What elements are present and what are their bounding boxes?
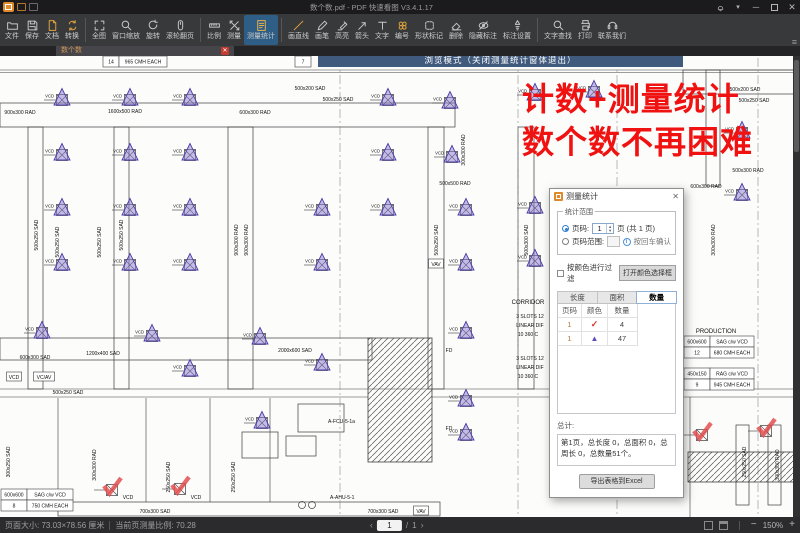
header-cell: 颜色 [582, 304, 608, 317]
contact-icon [606, 19, 619, 32]
svg-text:VCD: VCD [113, 94, 122, 99]
svg-text:300x300 RAD: 300x300 RAD [92, 449, 98, 481]
row-page: 1 [558, 318, 582, 331]
duct-label: 3 SLOTS 12 [516, 356, 544, 362]
duct-label: 250x250 SAD [742, 446, 748, 477]
document-tabbar: 数个数 ✕ [0, 46, 800, 56]
zoom-controls: − 150% + [704, 520, 795, 530]
duct-label: 300x300 RAD [775, 449, 781, 481]
toolbar-label: 联系我们 [598, 33, 626, 41]
svg-text:VAV: VAV [431, 262, 441, 268]
svg-text:VCD: VCD [725, 189, 734, 194]
svg-text:VCD: VCD [305, 259, 314, 264]
red-check-marker-icon: ✓ [591, 319, 599, 330]
duct-label: 300x300 RAD [461, 134, 467, 166]
svg-text:VCD: VCD [371, 94, 380, 99]
duct-label: 500x250 SAD [53, 390, 84, 396]
notification-bell-icon[interactable] [715, 2, 725, 12]
svg-text:1600x500 RAD: 1600x500 RAD [108, 109, 142, 115]
statusbar: 页面大小: 73.03×78.56 厘米 当前页测量比例: 70.28 ‹ 1 … [0, 517, 800, 533]
svg-text:900x300 RAD: 900x300 RAD [244, 224, 250, 256]
toolbar-label: 隐藏标注 [469, 33, 497, 41]
svg-text:SAG c/w VCD: SAG c/w VCD [34, 493, 66, 499]
stats-icon [255, 19, 268, 32]
duct-label: 600x300 RAD [690, 184, 722, 190]
toolbar-text-button[interactable]: 文字 [372, 15, 392, 45]
toolbar-label: 打印 [578, 33, 592, 41]
blueprint-table: 14965 CMH EACH [103, 56, 167, 67]
toolbar-label: 文字 [375, 33, 389, 41]
quick-save-icon[interactable] [29, 3, 38, 11]
blueprint-table: 600x600SAG c/w VCD8750 CMH EACH [1, 489, 73, 511]
svg-text:VCD: VCD [449, 259, 458, 264]
print-icon [579, 19, 592, 32]
doc-icon [46, 19, 59, 32]
search-icon [552, 19, 565, 32]
duct-label: 300x250 SAD [6, 446, 12, 477]
overlay-line1: 计数+测量统计 [522, 78, 753, 121]
overlay-line2: 数个数不再困难 [522, 121, 753, 164]
svg-text:600x300 RAD: 600x300 RAD [239, 110, 271, 116]
blueprint-table: 450x150RAG c/w VCD9945 CMH EACH [684, 368, 754, 390]
page-radio[interactable] [562, 225, 569, 232]
svg-text:VCD: VCD [435, 151, 444, 156]
toolbar-label: 旋转 [146, 33, 160, 41]
annoset-icon [511, 19, 524, 32]
color-filter-checkbox[interactable] [557, 270, 564, 277]
total-label: 总计: [557, 420, 676, 431]
stats-table-row[interactable]: 1✓4 [558, 318, 637, 332]
open-color-picker-button[interactable]: 打开颜色选择框 [619, 265, 676, 281]
toolbar-print-button[interactable]: 打印 [575, 15, 595, 45]
svg-text:VCD: VCD [449, 429, 458, 434]
blueprint-table: 7 [295, 56, 311, 67]
duct-label: VC/AV [34, 372, 55, 381]
toolbar-label: 形状标记 [415, 33, 443, 41]
svg-text:VCD: VCD [449, 327, 458, 332]
zoom-out-button[interactable]: − [751, 520, 757, 530]
svg-text:VC/AV: VC/AV [37, 375, 52, 381]
toolbar-scale-button[interactable]: 比例 [204, 15, 224, 45]
svg-text:VCD: VCD [191, 495, 202, 501]
duct-label: 600x300 RAD [239, 110, 271, 116]
duct-label: 1200x400 SAD [86, 351, 120, 357]
svg-text:945 CMH EACH: 945 CMH EACH [714, 383, 751, 389]
svg-text:600x300 SAD: 600x300 SAD [20, 355, 51, 361]
svg-text:700x300 SAD: 700x300 SAD [140, 509, 171, 515]
svg-text:10 360 C: 10 360 C [518, 374, 539, 380]
text-icon [376, 19, 389, 32]
svg-text:VCD: VCD [305, 359, 314, 364]
line-icon [292, 19, 305, 32]
duct-label: 300x300 RAD [92, 449, 98, 481]
svg-text:VCD: VCD [518, 255, 527, 260]
toolbar-divider [200, 18, 201, 42]
current-page-input[interactable]: 1 [377, 520, 402, 531]
vertical-scrollbar[interactable] [793, 56, 800, 517]
duct-label: VCD [191, 495, 202, 501]
convert-icon [66, 19, 79, 32]
svg-text:500x250 SAD: 500x250 SAD [53, 390, 84, 396]
svg-text:A-AHU-5-1: A-AHU-5-1 [330, 495, 355, 501]
app-logo-icon [3, 2, 14, 12]
svg-text:300x250 SAD: 300x250 SAD [6, 446, 12, 477]
toolbar-rotate-button[interactable]: 旋转 [143, 15, 163, 45]
close-button[interactable]: ✕ [787, 2, 797, 12]
toolbar-label: 删除 [449, 33, 463, 41]
toolbar-search-button[interactable]: 文字查找 [541, 15, 575, 45]
erase-icon [450, 19, 463, 32]
toolbar-label: 转换 [65, 33, 79, 41]
svg-text:VCD: VCD [173, 149, 182, 154]
fit-width-icon[interactable] [719, 521, 728, 530]
duct-label: 250x250 SAD [231, 461, 237, 492]
page-separator: / [406, 521, 408, 530]
svg-text:SAG c/w VCD: SAG c/w VCD [716, 340, 748, 346]
svg-text:500x200 SAD: 500x200 SAD [295, 86, 326, 92]
toolbar-erase-button[interactable]: 删除 [446, 15, 466, 45]
blueprint-table: 600x600SAG c/w VCD12680 CMH EACH [684, 336, 754, 358]
toolbar-label: 编号 [395, 33, 409, 41]
svg-text:VCD: VCD [45, 204, 54, 209]
svg-text:VCD: VCD [433, 97, 442, 102]
duct-label: 3 SLOTS 12 [516, 314, 544, 320]
toolbar-arrow-button[interactable]: 箭头 [352, 15, 372, 45]
toolbar-highlight-button[interactable]: 高亮 [332, 15, 352, 45]
svg-text:VCD: VCD [45, 94, 54, 99]
window-title: 数个数.pdf - PDF 快速看图 V3.4.1.17 [310, 2, 433, 13]
mouse-icon [174, 19, 187, 32]
row-page: 1 [558, 332, 582, 345]
duct-label: 700x300 SAD [368, 509, 399, 515]
fit-icon [93, 19, 106, 32]
toolbar-pen-button[interactable]: 画笔 [312, 15, 332, 45]
svg-text:VCD: VCD [245, 417, 254, 422]
stats-table-header: 页码颜色数量 [558, 304, 637, 318]
svg-text:CORRIDOR: CORRIDOR [512, 300, 545, 306]
duct-label: 500x300 SAD [524, 224, 530, 255]
scale-text: 当前页测量比例: 70.28 [115, 520, 195, 531]
duct-label: VAV [429, 259, 444, 268]
scrollbar-thumb[interactable] [794, 60, 799, 152]
svg-text:300x300 RAD: 300x300 RAD [461, 134, 467, 166]
folder-icon [6, 19, 19, 32]
hide-icon [477, 19, 490, 32]
header-cell: 数量 [608, 304, 636, 317]
svg-text:600x300 RAD: 600x300 RAD [690, 184, 722, 190]
next-page-icon[interactable]: › [421, 520, 424, 530]
duct-label: 10 360 C [518, 332, 539, 338]
svg-text:14: 14 [108, 60, 114, 66]
svg-text:LINEAR DIF: LINEAR DIF [516, 365, 544, 371]
svg-text:900x300 RAD: 900x300 RAD [234, 224, 240, 256]
svg-text:250x250 SAD: 250x250 SAD [166, 461, 172, 492]
toolbar-number-button[interactable]: 编号 [392, 15, 412, 45]
stats-tab-长度[interactable]: 长度 [557, 291, 598, 304]
svg-text:250x250 SAD: 250x250 SAD [231, 461, 237, 492]
color-filter-label: 按颜色进行过滤 [567, 262, 616, 284]
toolbar-hide-button[interactable]: 隐藏标注 [466, 15, 500, 45]
page-size-text: 页面大小: 73.03×78.56 厘米 [5, 520, 104, 531]
toolbar-label: 比例 [207, 33, 221, 41]
duct-label: 10 360 C [518, 374, 539, 380]
duct-label: CORRIDOR [512, 300, 545, 306]
maximize-button[interactable] [769, 2, 779, 12]
duct-label: 500x300 RAD [732, 168, 764, 174]
svg-text:VCD: VCD [173, 259, 182, 264]
duct-label: 500x250 SAD [34, 219, 40, 250]
duct-label: A-AHU-5-1 [330, 495, 355, 501]
stats-range-group: 统计范围 页码: 1 ▲▼ 页 (共 1 页) 页码范围: i 按回车确认 [557, 211, 676, 255]
toolbar-label: 高亮 [335, 33, 349, 41]
toolbar-stats-button[interactable]: 测量统计 [244, 15, 278, 45]
zoomwin-icon [120, 19, 133, 32]
duct-label: 500x250 SAD [434, 224, 440, 255]
number-icon [396, 19, 409, 32]
duct-label: 500x250 SAD [55, 226, 61, 257]
svg-text:500x250 SAD: 500x250 SAD [119, 219, 125, 250]
page-radio-label: 页码: [572, 223, 589, 234]
duct-label: 500x500 RAD [439, 181, 471, 187]
save-icon [26, 19, 39, 32]
minimize-button[interactable]: ─ [751, 2, 761, 12]
svg-text:VCD: VCD [9, 375, 20, 381]
svg-text:1200x400 SAD: 1200x400 SAD [86, 351, 120, 357]
svg-text:VCD: VCD [173, 204, 182, 209]
duct-label: 250x250 SAD [166, 461, 172, 492]
svg-text:VAV: VAV [416, 509, 426, 515]
toolbar-label: 窗口缩放 [112, 33, 140, 41]
info-icon: i [623, 238, 631, 246]
duct-label: 900x300 RAD [244, 224, 250, 256]
row-marker: ✓ [582, 318, 608, 331]
page-range-radio[interactable] [562, 238, 569, 245]
shape-icon [423, 19, 436, 32]
toolbar-divider [85, 18, 86, 42]
duct-label: 500x250 SAD [119, 219, 125, 250]
svg-text:VCD: VCD [45, 149, 54, 154]
svg-text:10 360 C: 10 360 C [518, 332, 539, 338]
duct-label: 500x200 SAD [295, 86, 326, 92]
svg-text:450x150: 450x150 [687, 372, 706, 378]
chevron-down-icon[interactable]: ▾ [733, 2, 743, 12]
svg-text:VCD: VCD [45, 259, 54, 264]
duct-label: 700x300 SAD [140, 509, 171, 515]
row-count: 47 [608, 332, 636, 345]
svg-text:500x250 SAD: 500x250 SAD [34, 219, 40, 250]
toolbar-label: 文字查找 [544, 33, 572, 41]
toolbar-label: 测量统计 [247, 33, 275, 41]
duct-label: 900x300 RAD [4, 110, 36, 116]
toolbar-label: 全图 [92, 33, 106, 41]
confirm-hint: 按回车确认 [634, 236, 672, 247]
total-pages: 1 [412, 521, 416, 530]
svg-text:7: 7 [302, 60, 305, 66]
svg-text:250x250 SAD: 250x250 SAD [742, 446, 748, 477]
svg-text:RAG c/w VCD: RAG c/w VCD [716, 372, 748, 378]
stats-tabs: 长度面积数量 [557, 291, 676, 304]
measurement-stats-panel: 测量统计 ✕ 统计范围 页码: 1 ▲▼ 页 (共 1 页) 页码范围: i 按… [549, 188, 684, 498]
measure-icon [228, 19, 241, 32]
prev-page-icon[interactable]: ‹ [370, 520, 373, 530]
tab-label: 数个数 [61, 46, 82, 56]
divider [739, 521, 740, 530]
svg-text:VCD: VCD [123, 495, 134, 501]
fit-page-icon[interactable] [704, 521, 713, 530]
svg-text:8: 8 [13, 504, 16, 510]
svg-text:300x300 RAD: 300x300 RAD [711, 224, 717, 256]
duct-label: FD [446, 348, 453, 354]
stats-tab-数量[interactable]: 数量 [636, 291, 677, 304]
duct-label: 500x250 SAD [323, 97, 354, 103]
toolbar-label: 画直线 [288, 33, 309, 41]
document-canvas[interactable]: 14965 CMH EACH7600x600SAG c/w VCD8750 CM… [0, 56, 800, 517]
svg-text:700x300 SAD: 700x300 SAD [368, 509, 399, 515]
toolbar-label: 保存 [25, 33, 39, 41]
stats-range-legend: 统计范围 [563, 207, 595, 217]
duct-label: 1600x500 RAD [108, 109, 142, 115]
svg-text:300x300 RAD: 300x300 RAD [775, 449, 781, 481]
duct-label: 600x300 SAD [20, 355, 51, 361]
svg-text:500x500 RAD: 500x500 RAD [439, 181, 471, 187]
document-tab[interactable]: 数个数 ✕ [56, 46, 234, 56]
toolbar-label: 箭头 [355, 33, 369, 41]
export-excel-button[interactable]: 导出表格到Excel [579, 474, 655, 489]
svg-text:750 CMH EACH: 750 CMH EACH [32, 504, 69, 510]
collapse-toolbar-icon[interactable]: ≡ [792, 38, 797, 46]
panel-close-icon[interactable]: ✕ [672, 192, 679, 201]
svg-text:600x600: 600x600 [687, 340, 706, 346]
toolbar-measure-button[interactable]: 测量 [224, 15, 244, 45]
quick-doc-icon[interactable] [17, 3, 26, 11]
toolbar-label: 滚轮翻页 [166, 33, 194, 41]
svg-text:VCD: VCD [25, 327, 34, 332]
svg-text:965 CMH EACH: 965 CMH EACH [125, 60, 162, 66]
panel-icon [554, 192, 563, 201]
svg-text:VCD: VCD [113, 204, 122, 209]
svg-text:VCD: VCD [371, 204, 380, 209]
duct-label: 500x250 SAD [97, 226, 103, 257]
stepper-arrows-icon[interactable]: ▲▼ [606, 224, 613, 233]
svg-text:500x250 SAD: 500x250 SAD [323, 97, 354, 103]
svg-text:500x300 SAD: 500x300 SAD [524, 224, 530, 255]
rotate-icon [147, 19, 160, 32]
page-navigation: ‹ 1 / 1 › [370, 520, 424, 531]
toolbar-label: 测量 [227, 33, 241, 41]
app-window: { "window": { "title": "数个数.pdf - PDF 快速… [0, 0, 800, 533]
svg-text:VCD: VCD [135, 330, 144, 335]
duct-label: A-FCU-5-1a [328, 419, 355, 425]
svg-text:2000x600 SAD: 2000x600 SAD [278, 348, 312, 354]
duct-label: LINEAR DIF [516, 365, 544, 371]
page-range-input[interactable] [607, 236, 619, 247]
svg-text:9: 9 [696, 383, 699, 389]
svg-text:500x300 RAD: 500x300 RAD [732, 168, 764, 174]
header-cell: 页码 [558, 304, 582, 317]
duct-label: 300x300 RAD [711, 224, 717, 256]
titlebar: 数个数.pdf - PDF 快速看图 V3.4.1.17 ▾ ─ ✕ [0, 0, 800, 14]
toolbar-mouse-button[interactable]: 滚轮翻页 [163, 15, 197, 45]
stats-table-row[interactable]: 1▲47 [558, 332, 637, 346]
stats-table: 页码颜色数量1✓41▲47 [557, 304, 676, 414]
toolbar-annoset-button[interactable]: 标注设置 [500, 15, 534, 45]
zoom-in-button[interactable]: + [789, 520, 795, 530]
svg-text:PRODUCTION: PRODUCTION [696, 329, 736, 335]
svg-text:VCD: VCD [113, 149, 122, 154]
toolbar-label: 画笔 [315, 33, 329, 41]
panel-title: 测量统计 [566, 191, 669, 202]
toolbar-label: 文档 [45, 33, 59, 41]
toolbar-doc-button[interactable]: 文档 [42, 15, 62, 45]
row-marker: ▲ [582, 332, 608, 345]
svg-text:3 SLOTS 12: 3 SLOTS 12 [516, 314, 544, 320]
svg-text:A-FCU-5-1a: A-FCU-5-1a [328, 419, 355, 425]
svg-text:500x250 SAD: 500x250 SAD [55, 226, 61, 257]
toolbar-convert-button[interactable]: 转换 [62, 15, 82, 45]
main-toolbar: 文件保存文档转换全图窗口缩放旋转滚轮翻页比例测量测量统计画直线画笔高亮箭头文字编… [0, 14, 800, 46]
arrow-icon [356, 19, 369, 32]
duct-label: 900x300 RAD [234, 224, 240, 256]
duct-label: VAV [414, 506, 429, 515]
toolbar-folder-button[interactable]: 文件 [2, 15, 22, 45]
svg-text:VCD: VCD [305, 204, 314, 209]
svg-text:FD: FD [446, 348, 453, 354]
toolbar-divider [537, 18, 538, 42]
page-number-value: 1 [593, 224, 606, 233]
marketing-overlay-text: 计数+测量统计 数个数不再困难 [522, 78, 753, 164]
svg-text:VCD: VCD [243, 333, 252, 338]
svg-text:VCD: VCD [173, 94, 182, 99]
duct-label: 2000x600 SAD [278, 348, 312, 354]
duct-label: VCD [7, 372, 22, 381]
divider [109, 521, 110, 530]
total-summary: 第1页，总长度 0，总面积 0，总周长 0，总数量51个。 [557, 434, 676, 466]
toolbar-fit-button[interactable]: 全图 [89, 15, 109, 45]
svg-text:VCD: VCD [173, 365, 182, 370]
pen-icon [316, 19, 329, 32]
svg-text:VCD: VCD [449, 395, 458, 400]
svg-text:VCD: VCD [449, 204, 458, 209]
toolbar-label: 文件 [5, 33, 19, 41]
toolbar-divider [281, 18, 282, 42]
page-number-stepper[interactable]: 1 ▲▼ [592, 223, 614, 234]
svg-text:3 SLOTS 12: 3 SLOTS 12 [516, 356, 544, 362]
svg-text:LINEAR DIF: LINEAR DIF [516, 323, 544, 329]
page-range-label: 页码范围: [572, 236, 604, 247]
svg-text:600x600: 600x600 [4, 493, 23, 499]
scale-icon [208, 19, 221, 32]
svg-text:680 CMH EACH: 680 CMH EACH [714, 351, 751, 357]
toolbar-line-button[interactable]: 画直线 [285, 15, 312, 45]
zoom-level: 150% [763, 521, 783, 530]
toolbar-zoomwin-button[interactable]: 窗口缩放 [109, 15, 143, 45]
page-count-label: 页 (共 1 页) [617, 223, 655, 234]
highlight-icon [336, 19, 349, 32]
row-count: 4 [608, 318, 636, 331]
duct-label: VCD [123, 495, 134, 501]
tab-close-icon[interactable]: ✕ [221, 47, 229, 55]
toolbar-save-button[interactable]: 保存 [22, 15, 42, 45]
toolbar-label: 标注设置 [503, 33, 531, 41]
toolbar-contact-button[interactable]: 联系我们 [595, 15, 629, 45]
svg-text:VCD: VCD [371, 149, 380, 154]
svg-text:12: 12 [694, 351, 700, 357]
purple-triangle-marker-icon: ▲ [591, 334, 599, 343]
svg-text:VCD: VCD [518, 202, 527, 207]
svg-text:900x300 RAD: 900x300 RAD [4, 110, 36, 116]
stats-tab-面积[interactable]: 面积 [597, 291, 638, 304]
toolbar-shape-button[interactable]: 形状标记 [412, 15, 446, 45]
